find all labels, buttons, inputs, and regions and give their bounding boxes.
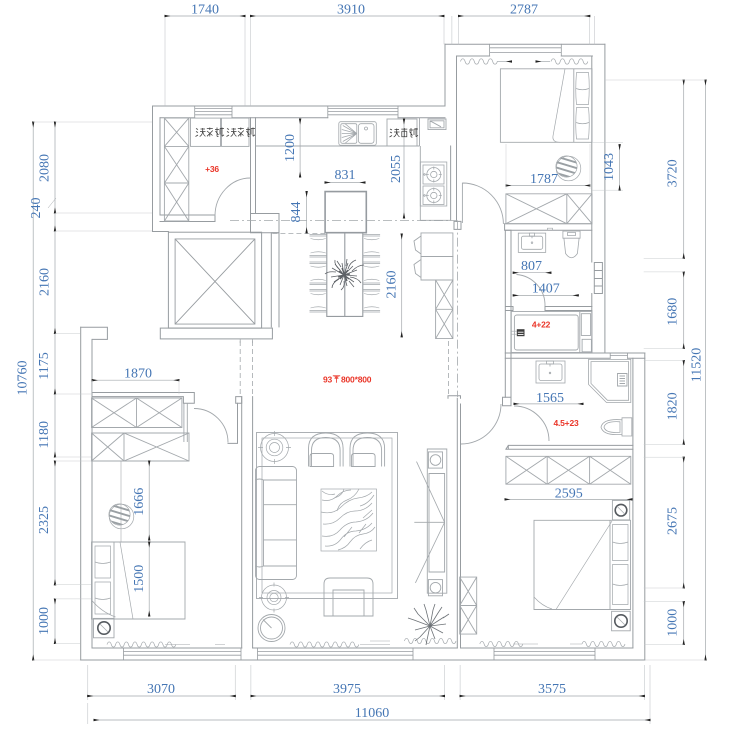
svg-text:831: 831 (335, 168, 356, 183)
svg-text:1500: 1500 (132, 565, 147, 593)
svg-text:1043: 1043 (602, 153, 617, 181)
svg-text:3975: 3975 (333, 682, 361, 697)
svg-text:1000: 1000 (665, 609, 680, 637)
svg-text:1666: 1666 (132, 488, 147, 516)
svg-text:3070: 3070 (147, 682, 175, 697)
svg-text:1000: 1000 (37, 607, 52, 635)
svg-text:2325: 2325 (37, 506, 52, 534)
svg-text:3575: 3575 (538, 682, 566, 697)
svg-text:2675: 2675 (665, 507, 680, 535)
svg-text:93: 93 (323, 375, 333, 385)
svg-text:4+22: 4+22 (532, 320, 551, 330)
svg-text:1180: 1180 (37, 421, 52, 448)
svg-text:844: 844 (289, 202, 304, 223)
svg-text:10760: 10760 (16, 361, 31, 396)
svg-text:+36: +36 (205, 164, 219, 174)
svg-text:240: 240 (29, 198, 44, 219)
svg-text:11520: 11520 (690, 348, 705, 382)
svg-text:2595: 2595 (555, 487, 583, 502)
svg-text:3720: 3720 (665, 159, 680, 187)
svg-text:3910: 3910 (337, 3, 365, 18)
svg-text:11060: 11060 (355, 706, 389, 721)
svg-text:1565: 1565 (536, 391, 564, 406)
svg-text:2160: 2160 (385, 271, 400, 299)
svg-text:1820: 1820 (665, 392, 680, 420)
svg-text:1200: 1200 (283, 134, 298, 162)
svg-text:1407: 1407 (532, 282, 560, 297)
svg-text:1175: 1175 (37, 352, 52, 379)
svg-text:1680: 1680 (665, 298, 680, 326)
svg-text:1787: 1787 (530, 172, 558, 187)
svg-text:800*800: 800*800 (341, 375, 372, 385)
svg-text:1740: 1740 (191, 3, 219, 18)
svg-text:2055: 2055 (389, 155, 404, 183)
svg-text:807: 807 (521, 259, 542, 274)
svg-text:2160: 2160 (38, 268, 53, 296)
svg-text:2787: 2787 (510, 3, 538, 18)
svg-text:4.5+23: 4.5+23 (553, 418, 579, 428)
svg-text:1870: 1870 (124, 367, 152, 382)
svg-text:2080: 2080 (38, 154, 53, 182)
